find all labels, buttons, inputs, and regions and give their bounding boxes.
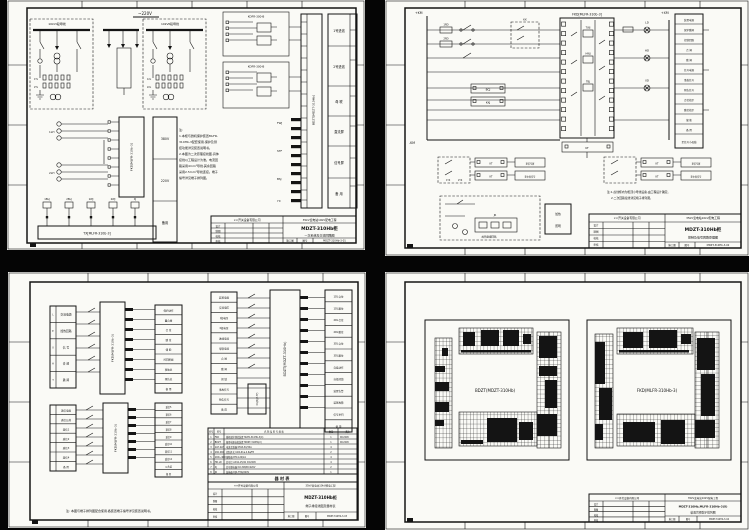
riser-label: XJ xyxy=(134,197,137,201)
title-block: ××开关设备有限公司 35kV变电站10kV配电工程 设计 制图 校核 审核 M… xyxy=(208,482,357,520)
riser-label: 1BLJ xyxy=(44,197,50,201)
cell: 3DL合位 xyxy=(334,342,344,346)
note-block: 注:1.虚线框内为柜顶小母线设备,由工程设计确定。 2.二次回路接线详见端子排列… xyxy=(607,190,670,200)
incoming-bay-2: 10kVⅡ段母线 1XL 2XL xyxy=(143,19,206,109)
cell: 信 号 xyxy=(63,345,70,349)
block-kt-row: KT xyxy=(562,138,613,158)
stub-group-label: STF xyxy=(277,149,282,153)
cell: 1 xyxy=(330,441,332,444)
stub-group-label: FWJ xyxy=(277,121,282,125)
bus-label-group: ~220V xyxy=(133,11,159,17)
cell: L xyxy=(52,314,54,317)
terminal-strip: BDZT[MDZT-310Hb] xyxy=(301,14,322,208)
cell: 加热 xyxy=(555,212,561,216)
block-label: BDZT(MDZT-310Hb) xyxy=(283,341,287,377)
project: 35kV变电站10kV配电工程 xyxy=(688,496,719,500)
cell: 事故信号 xyxy=(219,387,230,391)
sheet-title: MDZT-310Hb柜 xyxy=(304,494,337,500)
group3-block: BDZT(MDZT-310Hb) xyxy=(270,290,325,428)
sheet-title: MDZT-310Hb柜 xyxy=(685,226,722,233)
lamp-label: LD xyxy=(645,21,649,25)
bom-caption: 器 材 表 xyxy=(274,475,290,481)
cell: 至信号小母线 xyxy=(681,140,697,144)
cell: 1RD~4RD xyxy=(215,456,226,459)
cell: 2号进线 xyxy=(333,64,345,69)
note-line: 控功能详见装置说明书。 xyxy=(179,145,212,150)
block-label: FKD(MLFR-310b-3) xyxy=(114,424,118,452)
cell: 合 闸 xyxy=(221,357,227,361)
heater-caption: 加热驱潮回路 xyxy=(481,235,497,239)
cell: 遥信5 xyxy=(166,405,172,409)
riser-label: 1WJ xyxy=(89,197,94,201)
block-label: KGJB(JZ-7Y) xyxy=(256,393,259,406)
link-label: 至中央信号 xyxy=(525,175,537,179)
sheet-primary-wiring: ~220V 10kVⅠ段母线 1TL 2TL 10kVⅡ段母线 xyxy=(7,0,365,250)
ct-row-label: 1XL xyxy=(147,78,152,81)
cell: 信号继电器 DX-31B/DC220V xyxy=(226,465,256,469)
rev-label: 审核 xyxy=(593,243,599,247)
cell: 跳位指示 xyxy=(684,108,695,112)
drawing-no: MDZT-310Hb-3-02 xyxy=(707,243,730,247)
relay-label: BCJ xyxy=(486,88,491,92)
project: 35kV变电站10kV配电工程 xyxy=(686,216,720,220)
group2-right-table: 遥信5 遥信6 遥信7 遥信8 遥信9 遥信10 遥信11 遥信12 公共端 备… xyxy=(155,403,182,477)
cell: 4 xyxy=(330,446,332,449)
cell: 微机保护测控装置 MLFR-310Hb-3(X) xyxy=(226,435,264,439)
rev-label: 制图 xyxy=(215,229,221,233)
switch-label: KK xyxy=(523,18,527,22)
block-label: TX[MLFR-310b-3] xyxy=(82,232,111,236)
cell: DC220V xyxy=(340,441,349,444)
stub-group-label: BSJ xyxy=(277,177,282,181)
cell: 2DL跳位 xyxy=(334,330,344,334)
aux-voltage-block: 380V 220V 备用 xyxy=(153,117,177,242)
rev-label: 审核 xyxy=(215,239,221,243)
aux-box: 加热 照明 xyxy=(545,204,571,234)
lamp-branches: LD HD XD xyxy=(614,21,669,121)
no-label: 图号 xyxy=(684,243,690,247)
cell: 6 xyxy=(210,461,212,464)
cell: 备 用 xyxy=(335,191,342,196)
signal-links-right: KT KT 至信号屏 至中央信号 xyxy=(604,157,711,183)
cell: 3DL跳位 xyxy=(334,354,344,358)
cell: 遥信电源 xyxy=(61,409,72,413)
riser-label: 2BLJ xyxy=(66,197,72,201)
fkd-block: FKD[MLFR-310b-3] xyxy=(108,117,144,197)
right-terminal-table: 装置电源 保护跳闸 控制回路 合 闸 跳 闸 信号电源 事故信号 预告信号 合位… xyxy=(675,14,709,148)
group3-left-table: 装置电源 交流电压 Ⅰ段电压 Ⅱ段电压 进线电流 母联电流 合 闸 跳 闸 闭 … xyxy=(211,292,237,414)
cell: 遥信6 xyxy=(166,413,172,417)
cell: 跳 闸 xyxy=(221,367,227,371)
cell: 跳 闸 xyxy=(686,58,692,62)
coil-label: TBJ xyxy=(586,80,590,84)
bus-label: ~220V xyxy=(138,11,152,16)
company: ××开关设备有限公司 xyxy=(233,218,260,222)
cell: 照明 xyxy=(555,224,561,228)
cell: 事故信号 xyxy=(684,78,695,82)
sheet-subtitle: 端子排接线图及器材表 xyxy=(305,503,335,508)
kt-label: KT xyxy=(490,175,493,179)
cell: 2 xyxy=(330,451,332,454)
cell: 220V xyxy=(161,179,170,183)
link-label: 至信号屏 xyxy=(692,162,702,166)
no-label: 图号 xyxy=(305,514,310,518)
cell: 备 用 xyxy=(686,128,692,132)
note-line: 路采用4mm²导线,其余回路 xyxy=(179,163,216,168)
cell: 1KK.2KK xyxy=(215,451,225,454)
kt-label: KT xyxy=(585,146,589,150)
company: ××开关设备有限公司 xyxy=(234,484,259,488)
rev-label: 设计 xyxy=(594,502,599,506)
signal-links-left: 1YK 2YK KT KT 至信号屏 至中央信号 xyxy=(438,157,545,183)
cell: 跳 位 xyxy=(166,338,172,342)
title-block: ××开关设备有限公司 35kV变电站10kV配电工程 设计 制图 校核 审核 M… xyxy=(589,214,741,248)
protection-block: FKD[MLFR-310b-3] TWJ HWJ TBJ xyxy=(560,13,614,139)
cell: 装置告警 xyxy=(333,389,344,393)
cell: 装置电源 xyxy=(684,18,695,22)
rev-label: 设计 xyxy=(593,223,599,227)
cell: H xyxy=(52,363,54,366)
block-label: FKD(MLFR-310b-3) xyxy=(111,334,115,362)
sheet-terminal-wiring: L E X H T 交流电源 加热回路 信 号 合 闸 跳 闸 FKD(MLFR… xyxy=(8,272,366,528)
heater-circuit: JR 加热驱潮回路 xyxy=(440,196,540,240)
cell: 储 能 xyxy=(166,348,172,352)
cell: 遥信9 xyxy=(166,435,172,439)
cell: HD.LD xyxy=(215,461,222,464)
bom-header-cell: 名 称 及 型 号 规 格 xyxy=(264,429,284,433)
cell: 备用 xyxy=(162,220,168,225)
cell: 遥信4 xyxy=(63,456,70,460)
rail-label: +XM xyxy=(661,11,669,15)
link-label: 至中央信号 xyxy=(691,175,703,179)
cell: 母 联 xyxy=(335,99,343,104)
block-label: FKD[MLFR-310b-3] xyxy=(130,143,134,171)
sheet-control-circuit: +KM -KM +XM 1RD 2RD KK BCJ KKJ FKD[MLFR-… xyxy=(385,0,749,256)
cell: 信号屏 xyxy=(334,160,344,165)
cell: 7 xyxy=(210,466,212,469)
rail-label: -KM xyxy=(409,141,415,145)
fuse-label: 1RD xyxy=(443,23,448,27)
group2-left-table: 遥信电源 遥信公共 遥信1 遥信2 遥信3 遥信4 备 用 xyxy=(50,405,76,471)
cell: Ⅱ段电压 xyxy=(220,326,229,330)
sheet-subtitle: 装置背视端子排列图 xyxy=(690,511,715,515)
device-label: FKD(MLFR-310Hb-3) xyxy=(637,388,678,393)
cell: 1DL跳位 xyxy=(334,306,344,310)
bom-header-cell: 备注 xyxy=(345,429,350,433)
group3-fan xyxy=(237,294,270,408)
rail-label: +KM xyxy=(415,11,423,15)
lamp-label: HD xyxy=(645,49,649,53)
group2-block: FKD(MLFR-310b-3) xyxy=(103,403,155,473)
cell: 预告信号 xyxy=(684,88,695,92)
bus-tie xyxy=(103,30,139,95)
rev-label: 设计 xyxy=(213,491,218,495)
cell: 信号电源 xyxy=(684,68,695,72)
cell: 遥信1 xyxy=(63,427,70,431)
cell: 遥信7 xyxy=(166,420,172,424)
riser-label: 2WJ xyxy=(111,197,116,201)
drawing-no: MDZT-310Hb-3-01 xyxy=(323,239,346,243)
cell: 2 xyxy=(210,441,212,444)
group1-left-table: L E X H T 交流电源 加热回路 信 号 合 闸 跳 闸 xyxy=(50,306,76,388)
note-line: 2.本图为二次原理接线图,具体 xyxy=(179,151,219,156)
cell: 4 xyxy=(330,456,332,459)
lamp-label: XD xyxy=(645,79,649,83)
block-title: FKD[MLFR-310b-3] xyxy=(572,13,602,17)
note-line: 编号详见端子排列图。 xyxy=(179,175,209,180)
cell: 备 用 xyxy=(63,465,69,469)
cell: 1LH.2LH xyxy=(215,446,225,449)
note-line: 1.本柜与微机保护装置MLFR- xyxy=(179,133,218,138)
cell: T xyxy=(52,379,54,382)
rev-label: 校核 xyxy=(593,236,599,240)
ct-group-label: 1LH xyxy=(49,130,54,134)
cell: XJ xyxy=(215,466,217,469)
fuse-label: 2RD xyxy=(443,37,448,41)
cell: 2DL合位 xyxy=(334,318,344,322)
cell: 合 闸 xyxy=(63,362,70,366)
stage: 施工图 xyxy=(668,243,676,247)
cell: 闭 锁 xyxy=(221,377,227,381)
cell: 备用电源自投装置 MDZT-310Hb(X) xyxy=(226,440,262,444)
group2-fan xyxy=(76,406,103,464)
mid-stubs: FWJ STF BSJ YX xyxy=(277,118,301,203)
cell: 预告总 xyxy=(165,377,173,381)
cell: 储 能 xyxy=(686,118,692,122)
note-line: 2.二次回路接线详见端子排列图。 xyxy=(611,196,653,200)
stub-group-label: YX xyxy=(277,199,281,203)
cell: E xyxy=(52,330,54,333)
cell: 控制开关 LW2-Z1a.4.6a/F8 xyxy=(226,450,255,454)
bay-title: 10kVⅠ段母线 xyxy=(48,21,66,26)
cell: 交流电压 xyxy=(219,306,230,310)
no-label: 图号 xyxy=(302,239,308,243)
company: ××开关设备有限公司 xyxy=(613,216,640,220)
ct-row-label: 2TL xyxy=(34,86,39,89)
rev-label: 审核 xyxy=(213,515,218,519)
yk-label: 2YK xyxy=(458,179,463,182)
cell: 加热器 DJR-75W/220V xyxy=(226,470,250,474)
cell: 控回断线 xyxy=(163,358,174,362)
cell: X xyxy=(52,346,54,349)
rev-label: 校核 xyxy=(215,234,221,238)
bom-table: 序号 符号 名 称 及 型 号 规 格 数量 备注 1FKD微机保护测控装置 M… xyxy=(208,428,357,482)
cell: 合 闸 xyxy=(686,48,692,52)
cell: 公共端 xyxy=(165,464,172,468)
cell: 380V xyxy=(161,137,170,141)
bom-header-cell: 符号 xyxy=(217,429,222,433)
cell: 1号进线 xyxy=(333,28,345,33)
sheet-terminal-layout: BDZT(MDZT-310Hb) FKD(MLFR-310Hb-3) ××开关设… xyxy=(385,272,749,530)
company: ××开关设备有限公司 xyxy=(615,496,640,500)
cell: 遥信12 xyxy=(165,457,173,461)
strip-label: BDZT[MDZT-310Hb] xyxy=(312,95,316,125)
ct-group-label: 2LH xyxy=(49,171,54,175)
cell: 1DL合位 xyxy=(334,295,344,299)
cell: 装置故障 xyxy=(333,401,344,405)
stage: 施工图 xyxy=(288,514,295,518)
kgjb-block: KGJB(JZ-7Y) xyxy=(248,384,266,414)
cell: 备 用 xyxy=(221,408,227,412)
cell: Ⅰ段电压 xyxy=(220,316,229,320)
ct-row-label: 1TL xyxy=(34,78,39,81)
cell: 电流互感器 KTLB-3X/3XA xyxy=(226,445,252,449)
note-line: 注:1.虚线框内为柜顶小母线设备,由工程设计确定。 xyxy=(607,190,670,194)
title-block: ××开关设备有限公司 35kV变电站10kV配电工程 设计 制图 校核 审核 M… xyxy=(589,494,741,522)
incoming-bay-1: 10kVⅠ段母线 1TL 2TL xyxy=(30,19,93,109)
relay-label: KKJ xyxy=(486,101,491,105)
device-layout-1: BDZT(MDZT-310Hb) xyxy=(425,320,569,460)
drawing-no: MDZT-310Hb-3-04 xyxy=(709,518,730,521)
cell: 备 用 xyxy=(166,387,172,391)
cell: 进线电流 xyxy=(219,336,230,340)
cell: 遥信11 xyxy=(165,450,173,454)
group1-right-table: 保护动作 重合闸 合 位 跳 位 储 能 控回断线 事故总 预告总 备 用 xyxy=(155,305,182,393)
cell: 加热回路 xyxy=(60,329,71,333)
group1-block: FKD(MLFR-310b-3) xyxy=(100,302,155,394)
cell: 4 xyxy=(330,461,332,464)
sheet-title: MDZT-310Hb柜 xyxy=(301,225,338,232)
cell: 控制回路 xyxy=(684,38,695,42)
cell: 事故总 xyxy=(165,367,173,371)
cell: 3 xyxy=(210,446,212,449)
cell: FKD xyxy=(215,436,220,439)
note-line: 注: 本图与端子排列图配合使用,各装置端子编号详见装置说明书。 xyxy=(66,508,153,513)
cell: 备 用 xyxy=(166,472,171,476)
note-line: 注: xyxy=(179,127,183,132)
link-label: 至信号屏 xyxy=(526,162,536,166)
rev-label: 制图 xyxy=(594,508,598,512)
cell: 交流电源 xyxy=(60,313,71,317)
group1-fan xyxy=(76,308,100,372)
note-block: 注: 1.本柜与微机保护装置MLFR- 310Hb-3配套使用,保护及测 控功能… xyxy=(179,127,219,180)
drawing-canvas: ~220V 10kVⅠ段母线 1TL 2TL 10kVⅡ段母线 xyxy=(0,0,749,530)
coil-label: HWJ xyxy=(585,52,590,56)
cell: 保护动作 xyxy=(163,309,174,313)
ct-fan: 1LH 2LH xyxy=(49,122,108,181)
cell: 自投闭锁 xyxy=(333,377,344,381)
cell: 合位指示 xyxy=(684,98,695,102)
tx-block: TX[MLFR-310b-3] 1BLJ 2BLJ 1WJ 2WJ XJ xyxy=(38,197,156,239)
cell: 熔断器 RT14-20/2A xyxy=(226,455,246,459)
rev-label: 校核 xyxy=(213,507,218,511)
title-block: ××开关设备有限公司 35kV变电站10kV配电工程 设计 制图 校核 审核 M… xyxy=(211,216,356,243)
device-label: BDZT(MDZT-310Hb) xyxy=(475,388,516,393)
rev-label: 制图 xyxy=(593,230,599,234)
cell: 预告信号 xyxy=(219,398,230,402)
kt-label: KT xyxy=(656,175,659,179)
cell: 重合闸 xyxy=(165,318,173,322)
stage: 施工图 xyxy=(669,517,676,521)
cell: 信号灯 AD11-25/41 DC220V xyxy=(226,460,256,464)
cell: 1 xyxy=(330,436,332,439)
no-label: 图号 xyxy=(686,517,691,521)
right-legend-table: 1号进线 2号进线 母 联 直流屏 信号屏 备 用 xyxy=(328,14,357,208)
note-line: 接线以工程设计为准。电流回 xyxy=(179,157,218,162)
cell: 信号复归 xyxy=(333,413,344,417)
relay-block-1: KDFR-300-B xyxy=(223,12,289,56)
cell: 2 xyxy=(330,466,332,469)
kt-label: KT xyxy=(490,162,493,166)
sheet-subtitle: 一次系统及交流回路图 xyxy=(304,233,334,238)
project: 35kV变电站10kV配电工程 xyxy=(303,218,337,222)
bom-header-cell: 序号 xyxy=(209,429,214,433)
coil-label: TWJ xyxy=(586,26,591,30)
project: 35kV变电站10kV配电工程 xyxy=(305,484,336,488)
cell: 5 xyxy=(210,456,212,459)
sheet-subtitle: 控制及信号回路原理图 xyxy=(688,235,718,240)
note-line: 采用2.5mm²导线连接。端子 xyxy=(179,169,218,174)
stage: 施工图 xyxy=(286,239,294,243)
cell: 自投动作 xyxy=(333,365,344,369)
sheet-title: MDZT-310Hb,MLFR-310Hb-3(X) xyxy=(679,505,729,509)
cell: BDZT xyxy=(215,441,222,444)
cell: 遥信3 xyxy=(63,446,70,450)
cell: 装置电源 xyxy=(219,296,230,300)
ct-row-label: 2XL xyxy=(147,86,152,89)
cell: 合 位 xyxy=(166,328,172,332)
cell: 保护跳闸 xyxy=(684,28,695,32)
cell: 遥信2 xyxy=(63,437,70,441)
kt-label: KT xyxy=(656,162,659,166)
cell: DC220V xyxy=(340,436,349,439)
cell: 遥信公共 xyxy=(61,418,72,422)
heater-label: JR xyxy=(493,213,497,217)
rev-label: 制图 xyxy=(213,499,217,503)
bay-title: 10kVⅡ段母线 xyxy=(161,21,179,26)
cell: 直流屏 xyxy=(334,129,344,134)
group3-right-table: 1DL合位 1DL跳位 2DL合位 2DL跳位 3DL合位 3DL跳位 自投动作… xyxy=(325,290,352,432)
relay-title: KDFR-300-B xyxy=(248,15,265,19)
device-layout-2: FKD(MLFR-310Hb-3) xyxy=(587,320,731,460)
cell: 遥信8 xyxy=(166,427,172,431)
rev-label: 校核 xyxy=(594,513,599,517)
bom-header-cell: 数量 xyxy=(329,429,334,433)
left-components: 1RD 2RD KK BCJ KKJ xyxy=(440,18,539,107)
yk-label: 1YK xyxy=(446,179,451,182)
cell: 4 xyxy=(210,451,212,454)
relay-title: KDFR-300-B xyxy=(248,65,265,69)
cell: 母联电流 xyxy=(219,347,230,351)
note-line: 310Hb-3配套使用,保护及测 xyxy=(179,139,217,144)
cell: 1 xyxy=(210,436,212,439)
cell: 遥信10 xyxy=(165,442,173,446)
cell: 跳 闸 xyxy=(63,378,70,382)
drawing-no: MDZT-310Hb-3-03 xyxy=(327,515,348,518)
rev-label: 设计 xyxy=(215,224,221,228)
